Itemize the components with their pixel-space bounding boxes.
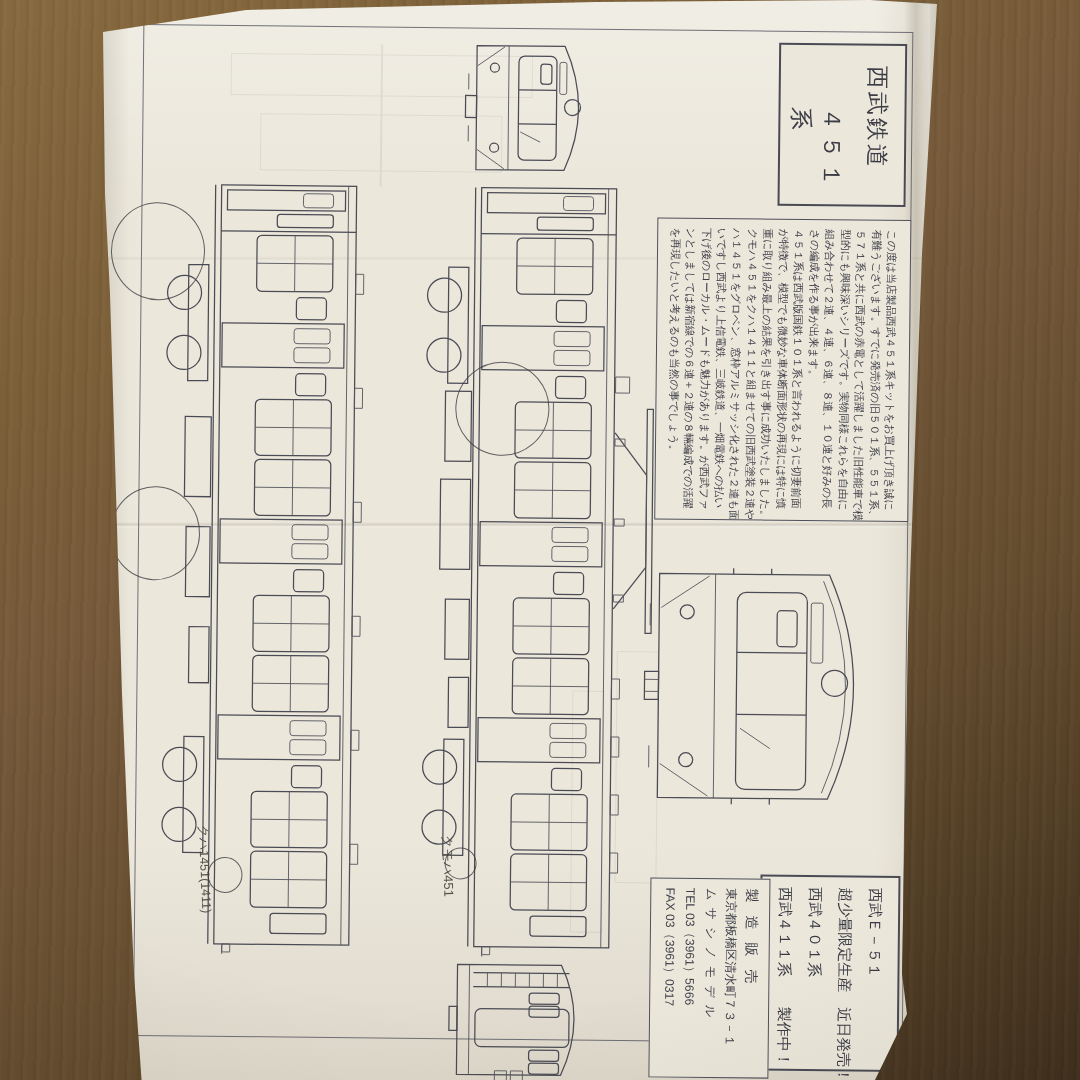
pantograph <box>613 377 654 633</box>
front-elevation-small-drawing <box>452 37 605 179</box>
intro-line: ５７１系と共に西武の赤電として活躍しました旧性能車で模 <box>850 229 868 511</box>
announce-line: 西武４１１系 製作中！ <box>769 887 801 1059</box>
intro-line: 有難うございます。すでに発売済の旧５０１系、５５１系、 <box>865 230 883 512</box>
printed-sheet-content-rotated: 西武鉄道 ４５１系 この度は当店製品西武４５１系キットをお買上げ頂き誠に 有難う… <box>106 6 933 1074</box>
maker-name: ムサシノモデル <box>699 888 721 1068</box>
intro-line: 型的にも興味深いシリーズです。実物同様これらを自由に <box>835 229 853 511</box>
intro-line: クモハ４５１をクハ１４１１と組ませての旧西武塗装２連やク <box>742 228 760 510</box>
announce-line: 西武Ｅ－５１ <box>859 888 891 1060</box>
maker-address: 東京都板橋区清水町７３－１ <box>719 888 741 1068</box>
series-name: ４５１系 <box>785 107 848 205</box>
intro-line: 組み合わせて２連、４連、６連、８連、１０連と好みの長 <box>819 229 837 511</box>
intro-line: が特徴で、模型でも微妙な車体断面形状の再現には特に慎 <box>773 229 791 511</box>
intro-line: ４５１系は西武版国鉄１０１系と言われるように切妻前面 <box>788 229 806 511</box>
announce-line: 西武４０１系 <box>799 887 831 1059</box>
maker-fax: FAX 03（3961）0317 <box>658 887 680 1067</box>
end-elevation-drawing <box>448 952 595 1080</box>
front-elevation-large-drawing <box>637 559 892 814</box>
intro-text-box: この度は当店製品西武４５１系キットをお買上げ頂き誠に 有難うございます。すでに発… <box>654 217 911 522</box>
intro-line: この度は当店製品西武４５１系キットをお買上げ頂き誠に <box>881 230 899 512</box>
railway-name: 西武鉄道 <box>861 66 893 205</box>
intro-line: ンとしましては新宿線での６連＋２連の８輛編成での活躍 <box>680 228 698 510</box>
hand-drawn-circle <box>444 847 476 879</box>
announce-line: 超少量限定生産 近日発売！ <box>829 887 861 1059</box>
end-ladder <box>473 973 569 988</box>
maker-tel: TEL 03（3961）5666 <box>678 888 700 1068</box>
folded-paper-sheet: 西武鉄道 ４５１系 この度は当店製品西武４５１系キットをお買上げ頂き誠に 有難う… <box>96 0 944 1080</box>
intro-line: 下げ後のローカル・ムードも魅力があります。が西武ファ <box>695 228 713 510</box>
new-product-announcement-box: 西武Ｅ－５１ 超少量限定生産 近日発売！ 西武４０１系 西武４１１系 製作中！ <box>758 875 900 1072</box>
bogie <box>427 267 469 383</box>
hand-drawn-circle <box>207 857 242 893</box>
windows-and-doors <box>476 238 605 937</box>
intro-line: いですし西武より上信電鉄、三岐鉄道、一畑電鉄への払い <box>711 228 729 510</box>
side-elevation-kuha1451-drawing <box>152 176 406 957</box>
photo-of-instruction-sheet: 西武鉄道 ４５１系 この度は当店製品西武４５１系キットをお買上げ頂き誠に 有難う… <box>0 0 1080 1080</box>
windows-and-doors <box>216 235 345 934</box>
title-box: 西武鉄道 ４５１系 <box>778 43 908 207</box>
maker-role: 製造販売 <box>740 888 762 1068</box>
manufacturer-box: 製造販売 東京都板橋区清水町７３－１ ムサシノモデル TEL 03（3961）5… <box>648 877 770 1078</box>
